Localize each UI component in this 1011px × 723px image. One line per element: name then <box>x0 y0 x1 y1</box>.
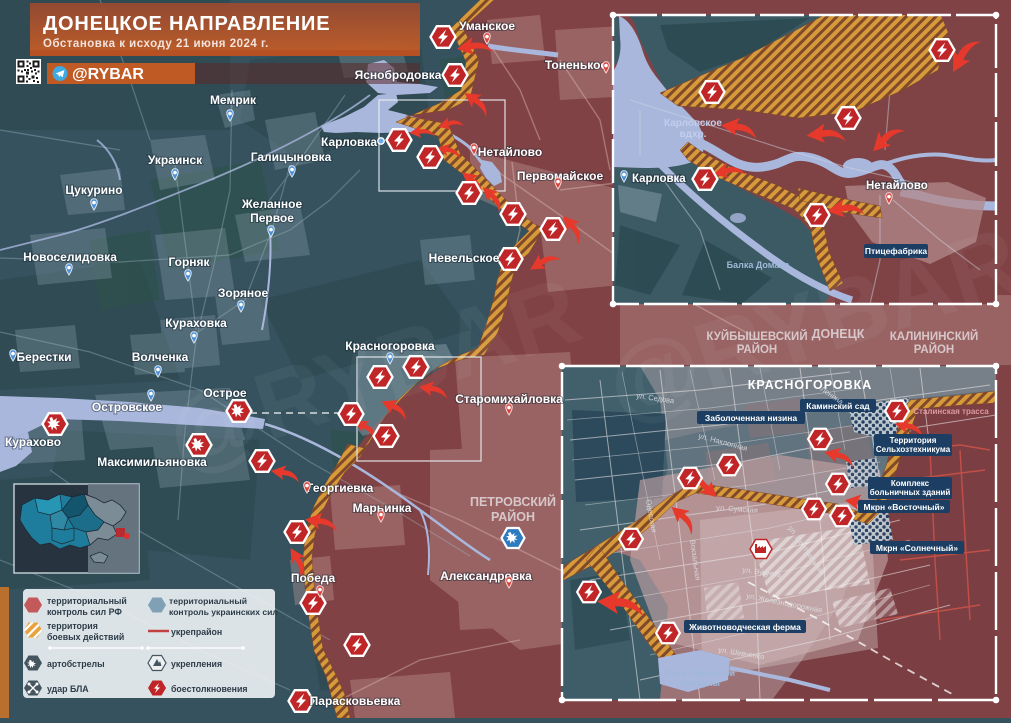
svg-text:Новоселидовка: Новоселидовка <box>23 250 117 264</box>
svg-text:Волченка: Волченка <box>132 350 189 364</box>
svg-text:ДОНЕЦКОЕ НАПРАВЛЕНИЕ: ДОНЕЦКОЕ НАПРАВЛЕНИЕ <box>43 13 330 35</box>
svg-text:Островское: Островское <box>92 400 162 414</box>
svg-text:Берестки: Берестки <box>16 350 71 364</box>
svg-text:Желанное: Желанное <box>241 197 303 211</box>
svg-text:Карловское: Карловское <box>664 118 722 129</box>
svg-text:Карловка: Карловка <box>321 135 377 149</box>
svg-text:больничных зданий: больничных зданий <box>870 488 951 497</box>
svg-text:Цукурино: Цукурино <box>65 183 122 197</box>
svg-text:Карловка: Карловка <box>632 173 686 185</box>
svg-text:Мкрн «Восточный»: Мкрн «Восточный» <box>863 502 944 512</box>
svg-text:@RYBAR: @RYBAR <box>72 66 144 83</box>
svg-text:Сельхозтехникума: Сельхозтехникума <box>876 445 951 454</box>
svg-text:Коммуны: Коммуны <box>680 678 720 688</box>
svg-text:Яснобродовка: Яснобродовка <box>355 68 442 82</box>
svg-text:ПЕТРОВСКИЙ: ПЕТРОВСКИЙ <box>470 494 556 509</box>
svg-text:территория: территория <box>47 621 98 631</box>
svg-text:Сталинская трасса: Сталинская трасса <box>913 407 989 416</box>
svg-text:Обстановка к исходу 21 июня 20: Обстановка к исходу 21 июня 2024 г. <box>43 38 269 50</box>
svg-text:удар БЛА: удар БЛА <box>47 684 89 694</box>
svg-text:Пруд Парижской: Пруд Парижской <box>665 668 735 678</box>
svg-text:Первое: Первое <box>250 211 294 225</box>
svg-text:укрепления: укрепления <box>171 659 222 669</box>
svg-text:Комплекс: Комплекс <box>891 479 930 488</box>
svg-text:Парасковьевка: Парасковьевка <box>310 694 401 708</box>
svg-text:Кураховка: Кураховка <box>165 316 227 330</box>
svg-text:Тоненькое: Тоненькое <box>545 58 608 72</box>
svg-text:боевых действий: боевых действий <box>47 632 124 642</box>
svg-text:Невельское: Невельское <box>429 251 500 265</box>
svg-text:Курахово: Курахово <box>5 435 61 449</box>
svg-text:Мемрик: Мемрик <box>210 93 257 107</box>
svg-text:артобстрелы: артобстрелы <box>47 659 105 669</box>
svg-text:контроль украинских сил: контроль украинских сил <box>169 607 278 617</box>
svg-text:Нетайлово: Нетайлово <box>866 180 928 192</box>
svg-text:Мкрн «Солнечный»: Мкрн «Солнечный» <box>876 543 958 553</box>
svg-text:Украинск: Украинск <box>148 153 203 167</box>
svg-text:территориальный: территориальный <box>169 596 247 606</box>
svg-text:территориальный: территориальный <box>47 596 127 606</box>
svg-text:Балка Домаха: Балка Домаха <box>727 260 791 270</box>
svg-text:укрепрайон: укрепрайон <box>171 627 222 637</box>
svg-text:Нетайлово: Нетайлово <box>478 145 542 159</box>
svg-text:Георгиевка: Георгиевка <box>307 481 374 495</box>
svg-text:Уманское: Уманское <box>459 19 515 33</box>
svg-text:Острое: Острое <box>203 386 247 400</box>
svg-text:боестолкновения: боестолкновения <box>171 684 248 694</box>
svg-text:Зоряное: Зоряное <box>218 286 269 300</box>
svg-text:РАЙОН: РАЙОН <box>914 343 954 356</box>
svg-text:вдхр.: вдхр. <box>680 129 707 140</box>
svg-text:контроль сил РФ: контроль сил РФ <box>47 607 122 617</box>
svg-text:Красногоровка: Красногоровка <box>345 339 435 353</box>
svg-text:Победа: Победа <box>291 571 336 585</box>
svg-text:Заболоченная низина: Заболоченная низина <box>705 413 797 423</box>
svg-text:Галицыновка: Галицыновка <box>251 150 332 164</box>
svg-text:Александровка: Александровка <box>440 569 532 583</box>
svg-text:Территория: Территория <box>890 436 937 445</box>
svg-text:Животноводческая ферма: Животноводческая ферма <box>688 622 801 632</box>
svg-text:Горняк: Горняк <box>168 255 210 269</box>
svg-text:РАЙОН: РАЙОН <box>491 509 535 524</box>
svg-text:Максимильяновка: Максимильяновка <box>97 455 207 469</box>
